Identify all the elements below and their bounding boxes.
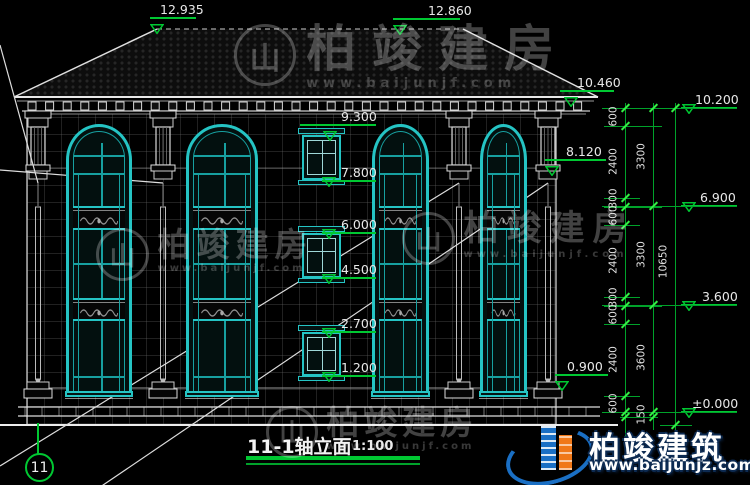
elevation-value: 10.460 — [577, 76, 621, 89]
elevation-mark-triangle — [322, 224, 336, 234]
elevation-value: 6.000 — [341, 218, 377, 231]
elevation-value: 8.120 — [566, 145, 602, 158]
logo-building-icon — [541, 426, 556, 470]
elevation-value: 0.900 — [567, 360, 603, 373]
elevation-value: 2.700 — [341, 317, 377, 330]
elevation-mark-triangle — [322, 269, 336, 279]
elevation-value: 10.200 — [695, 93, 739, 106]
elevation-value: 1.200 — [341, 361, 377, 374]
elevation-mark-triangle — [682, 296, 696, 306]
elevation-value: 12.860 — [428, 4, 472, 17]
dimension-line — [625, 103, 626, 442]
axis-leader-line — [37, 423, 39, 454]
dimension-line — [653, 103, 654, 430]
elevation-value: 12.935 — [160, 3, 204, 16]
elevation-value: 6.900 — [700, 191, 736, 204]
elevation-mark-triangle — [322, 172, 336, 182]
elevation-value: 3.600 — [702, 290, 738, 303]
dimension-line — [675, 103, 676, 442]
elevation-value: ±0.000 — [692, 397, 738, 410]
elevation-mark-triangle — [393, 20, 407, 30]
drawing-title: 11-1轴立面 — [247, 432, 352, 459]
axis-bubble-label: 11 — [31, 460, 49, 476]
dimension-value: 600 — [609, 95, 620, 139]
elevation-mark-triangle — [682, 197, 696, 207]
dimension-value: 600 — [609, 194, 620, 238]
drawing-scale: 1:100 — [352, 439, 393, 454]
annotations-layer: 12.93512.86010.4609.3008.1207.8006.0004.… — [0, 0, 750, 485]
elevation-mark-triangle — [555, 376, 569, 386]
elevation-value: 4.500 — [341, 263, 377, 276]
elevation-mark-triangle — [545, 161, 559, 171]
elevation-mark-triangle — [682, 99, 696, 109]
axis-bubble: 11 — [25, 453, 54, 482]
dimension-value: 600 — [609, 293, 620, 337]
elevation-mark-triangle — [150, 19, 164, 29]
logo-url-text: www.baijunjz.com — [589, 456, 750, 474]
elevation-value: 7.800 — [341, 166, 377, 179]
cad-elevation-drawing: 12.93512.86010.4609.3008.1207.8006.0004.… — [0, 0, 750, 485]
elevation-mark-triangle — [322, 323, 336, 333]
dimension-value: 600 — [609, 382, 620, 426]
elevation-mark-line — [300, 124, 376, 126]
elevation-mark-triangle — [322, 367, 336, 377]
logo-building-icon-2 — [559, 435, 572, 470]
elevation-mark-triangle — [323, 126, 337, 136]
dimension-value: 3600 — [637, 336, 648, 380]
title-underline-thick — [246, 456, 420, 460]
dimension-value: 2400 — [609, 338, 620, 382]
title-underline-thin — [246, 463, 420, 465]
elevation-value: 9.300 — [341, 110, 377, 123]
dimension-value: 10650 — [659, 240, 670, 284]
dimension-value: 3300 — [637, 135, 648, 179]
elevation-mark-triangle — [564, 92, 578, 102]
dimension-value: 3300 — [637, 233, 648, 277]
